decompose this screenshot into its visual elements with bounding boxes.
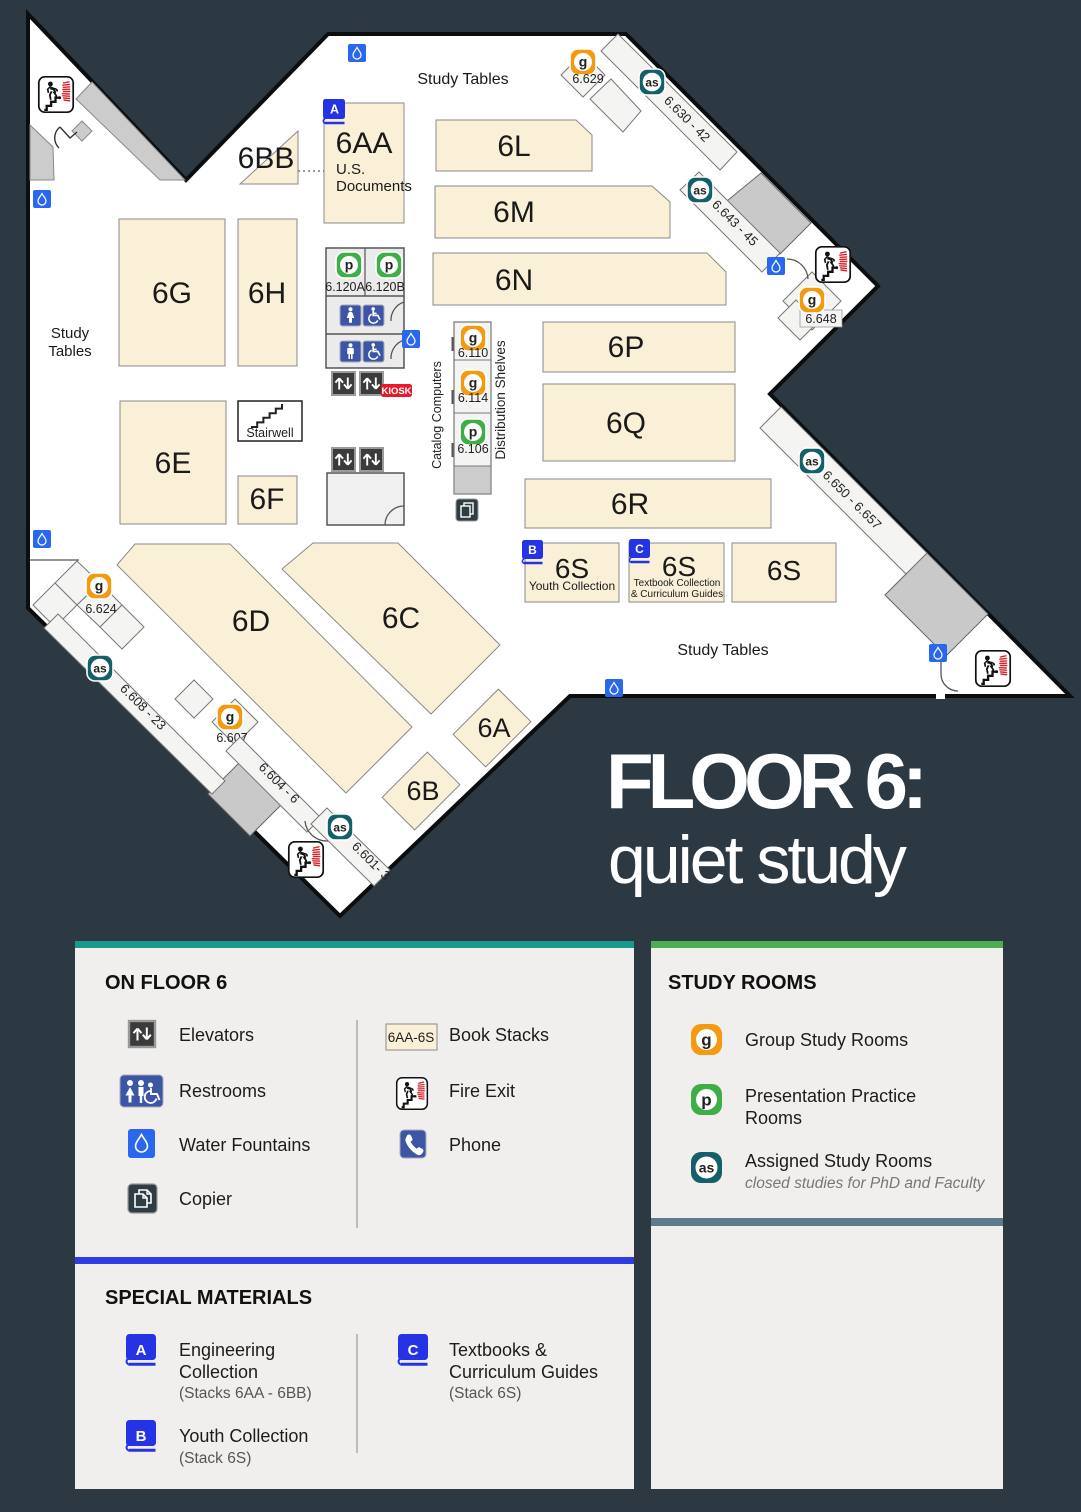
svg-text:Assigned Study Rooms: Assigned Study Rooms	[745, 1151, 932, 1171]
svg-text:6P: 6P	[608, 331, 645, 364]
svg-text:Study Tables: Study Tables	[417, 71, 508, 88]
svg-text:quiet study: quiet study	[608, 822, 907, 898]
svg-text:Restrooms: Restrooms	[179, 1081, 266, 1101]
svg-text:closed studies for PhD and Fac: closed studies for PhD and Faculty	[745, 1175, 986, 1192]
svg-text:C: C	[635, 542, 644, 556]
svg-text:A: A	[136, 1342, 147, 1359]
svg-text:Study Tables: Study Tables	[677, 642, 768, 659]
svg-text:Textbook Collection: Textbook Collection	[634, 578, 721, 589]
svg-text:6A: 6A	[477, 713, 510, 743]
svg-text:6N: 6N	[495, 264, 533, 297]
svg-text:Curriculum Guides: Curriculum Guides	[449, 1362, 598, 1382]
svg-text:(Stack 6S): (Stack 6S)	[179, 1450, 251, 1467]
svg-text:U.S.: U.S.	[336, 161, 365, 178]
svg-text:6F: 6F	[249, 483, 284, 516]
svg-text:Group Study Rooms: Group Study Rooms	[745, 1030, 908, 1050]
svg-text:Fire Exit: Fire Exit	[449, 1081, 515, 1101]
svg-text:6.114: 6.114	[458, 391, 488, 405]
svg-text:6AA-6S: 6AA-6S	[388, 1030, 435, 1045]
svg-text:FLOOR 6:: FLOOR 6:	[606, 737, 922, 825]
svg-text:6M: 6M	[493, 196, 535, 229]
svg-text:Distribution Shelves: Distribution Shelves	[493, 340, 508, 460]
svg-text:6Q: 6Q	[606, 407, 646, 440]
svg-text:6D: 6D	[232, 605, 270, 638]
svg-text:6.106: 6.106	[457, 442, 488, 456]
svg-text:Presentation Practice: Presentation Practice	[745, 1086, 916, 1106]
svg-text:C: C	[408, 1342, 419, 1359]
svg-text:A: A	[330, 103, 339, 117]
svg-text:Copier: Copier	[179, 1189, 232, 1209]
svg-text:Water Fountains: Water Fountains	[179, 1135, 310, 1155]
svg-text:6BB: 6BB	[238, 142, 295, 175]
svg-text:Documents: Documents	[336, 178, 412, 195]
svg-text:6.120A: 6.120A	[325, 280, 365, 294]
svg-text:6AA: 6AA	[336, 127, 393, 160]
svg-text:6.629: 6.629	[572, 72, 603, 86]
svg-text:B: B	[136, 1428, 147, 1445]
svg-text:6.110: 6.110	[458, 346, 488, 360]
svg-text:Stairwell: Stairwell	[246, 426, 293, 440]
svg-text:Collection: Collection	[179, 1362, 258, 1382]
svg-text:Textbooks &: Textbooks &	[449, 1340, 547, 1360]
svg-text:6S: 6S	[767, 555, 801, 586]
svg-text:Youth Collection: Youth Collection	[529, 579, 615, 593]
svg-text:6E: 6E	[155, 447, 192, 480]
svg-text:Engineering: Engineering	[179, 1340, 275, 1360]
svg-text:Catalog Computers: Catalog Computers	[430, 361, 444, 469]
svg-text:Phone: Phone	[449, 1135, 501, 1155]
svg-text:6H: 6H	[248, 277, 286, 310]
svg-text:(Stacks 6AA - 6BB): (Stacks 6AA - 6BB)	[179, 1385, 312, 1402]
svg-text:B: B	[528, 543, 537, 557]
svg-text:Book Stacks: Book Stacks	[449, 1025, 549, 1045]
svg-text:6.624: 6.624	[85, 602, 116, 616]
svg-text:6.648: 6.648	[805, 312, 836, 326]
svg-text:Tables: Tables	[48, 343, 91, 360]
svg-text:6B: 6B	[406, 776, 439, 806]
svg-text:6L: 6L	[497, 130, 530, 163]
svg-text:Study: Study	[51, 325, 90, 342]
svg-text:& Curriculum Guides: & Curriculum Guides	[631, 589, 723, 600]
svg-text:Youth Collection: Youth Collection	[179, 1426, 308, 1446]
svg-text:6C: 6C	[382, 602, 420, 635]
svg-text:6R: 6R	[611, 488, 649, 521]
svg-text:Elevators: Elevators	[179, 1025, 254, 1045]
svg-text:6.120B: 6.120B	[365, 280, 405, 294]
svg-text:6G: 6G	[152, 277, 192, 310]
svg-text:(Stack 6S): (Stack 6S)	[449, 1385, 521, 1402]
svg-text:Rooms: Rooms	[745, 1108, 802, 1128]
